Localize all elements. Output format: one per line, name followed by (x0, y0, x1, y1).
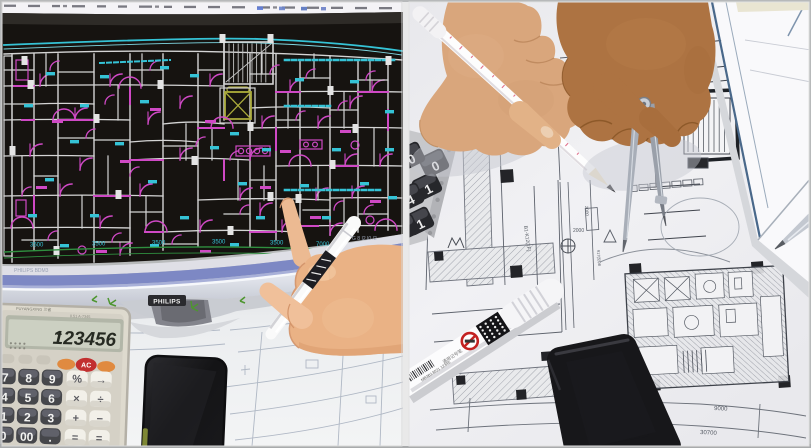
svg-text:5: 5 (24, 391, 31, 405)
svg-text:3500: 3500 (270, 241, 284, 247)
svg-text:2000: 2000 (573, 228, 584, 234)
svg-text:→: → (95, 374, 106, 386)
svg-text:00: 00 (20, 430, 34, 444)
svg-text:2000: 2000 (584, 206, 590, 217)
svg-text:%: % (72, 373, 82, 385)
svg-text:=: = (96, 433, 103, 445)
svg-text:123456: 123456 (52, 328, 117, 351)
svg-text:AC: AC (81, 362, 91, 369)
svg-text:9000: 9000 (714, 406, 728, 413)
svg-text:8: 8 (25, 371, 32, 385)
svg-text:×: × (73, 393, 80, 405)
svg-text:.: . (48, 431, 52, 445)
svg-text:3500: 3500 (152, 240, 166, 246)
svg-text:+: + (72, 412, 79, 424)
svg-text:2: 2 (24, 410, 31, 424)
svg-text:G 8 I2 I0 /2: G 8 I2 I0 /2 (352, 236, 377, 242)
svg-text:6: 6 (48, 392, 55, 406)
svg-text:=: = (72, 432, 79, 444)
svg-text:3500: 3500 (30, 243, 44, 249)
svg-text:PHILIPS: PHILIPS (153, 299, 181, 306)
svg-text:9: 9 (49, 372, 56, 386)
svg-text:3500: 3500 (92, 241, 106, 247)
svg-text:7: 7 (2, 370, 9, 384)
svg-text:3500: 3500 (212, 240, 226, 246)
svg-text:÷: ÷ (97, 394, 103, 406)
svg-text:PHILIPS BDM3: PHILIPS BDM3 (14, 268, 49, 274)
svg-text:3: 3 (47, 411, 54, 425)
svg-text:−: − (96, 413, 103, 425)
svg-text:30700: 30700 (700, 430, 718, 437)
svg-text:FUYANGXING 三省: FUYANGXING 三省 (16, 305, 51, 312)
